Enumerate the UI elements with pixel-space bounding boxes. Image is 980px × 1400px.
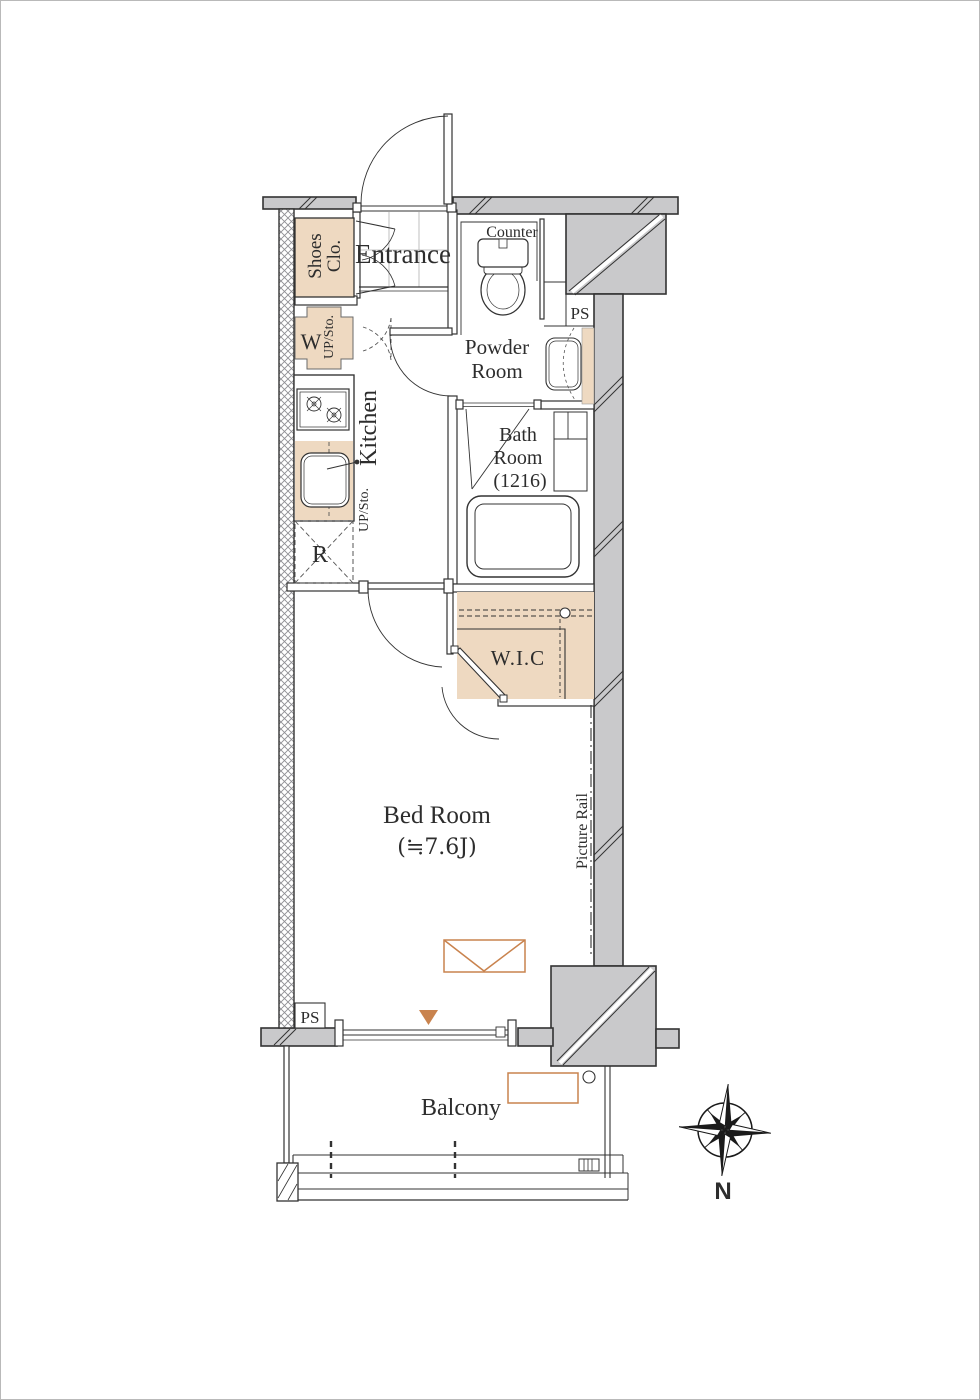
balcony-drain — [583, 1071, 595, 1083]
washbasin — [546, 328, 594, 404]
toilet — [478, 239, 528, 315]
label-bath-room-line1: Bath — [499, 424, 537, 446]
label-shoes-closet-line2: Clo. — [324, 240, 345, 272]
label-walk-in-closet: W.I.C — [491, 646, 545, 670]
label-entrance: Entrance — [355, 239, 451, 269]
entrance-door — [361, 114, 452, 211]
label-bath-room-line2: Room — [494, 447, 543, 469]
balcony-structure — [277, 1066, 628, 1201]
bedroom-marker-envelope — [444, 940, 525, 972]
balcony-vent — [579, 1159, 599, 1171]
floor-plan-page: Entrance Shoes Clo. Counter Powder Room … — [0, 0, 980, 1400]
window-marker-triangle — [419, 1010, 438, 1025]
label-powder-room-line2: Room — [471, 359, 522, 383]
powder-room-door — [390, 328, 452, 396]
compass-rose — [676, 1081, 774, 1179]
label-ps-upper: PS — [571, 304, 590, 323]
label-ps-lower: PS — [301, 1008, 320, 1027]
label-bed-room-line1: Bed Room — [383, 802, 491, 829]
bedroom-door — [368, 583, 444, 667]
floor-plan-drawing: Entrance Shoes Clo. Counter Powder Room … — [1, 1, 979, 1399]
label-shoes-closet-line1: Shoes — [305, 233, 326, 278]
left-exterior-wall — [279, 209, 294, 1028]
label-washer: W — [301, 329, 322, 354]
bedroom-window — [335, 1020, 516, 1046]
label-picture-rail: Picture Rail — [574, 792, 591, 869]
bath-shelf — [554, 412, 587, 491]
label-bed-room-line2: (≒7.6J) — [397, 835, 476, 860]
label-powder-room-line1: Powder — [465, 335, 529, 359]
label-compass-north: N — [714, 1178, 731, 1205]
stove — [297, 389, 349, 430]
label-up-storage-lower: UP/Sto. — [357, 488, 372, 532]
label-balcony: Balcony — [421, 1095, 501, 1121]
label-bath-room-line3: (1216) — [493, 470, 546, 492]
bathtub — [467, 496, 579, 577]
label-counter: Counter — [486, 224, 538, 241]
label-kitchen: Kitchen — [356, 390, 382, 466]
balcony-marker-rect — [508, 1073, 578, 1103]
label-up-storage-upper: UP/Sto. — [322, 315, 337, 359]
label-refrigerator: R — [312, 542, 328, 568]
